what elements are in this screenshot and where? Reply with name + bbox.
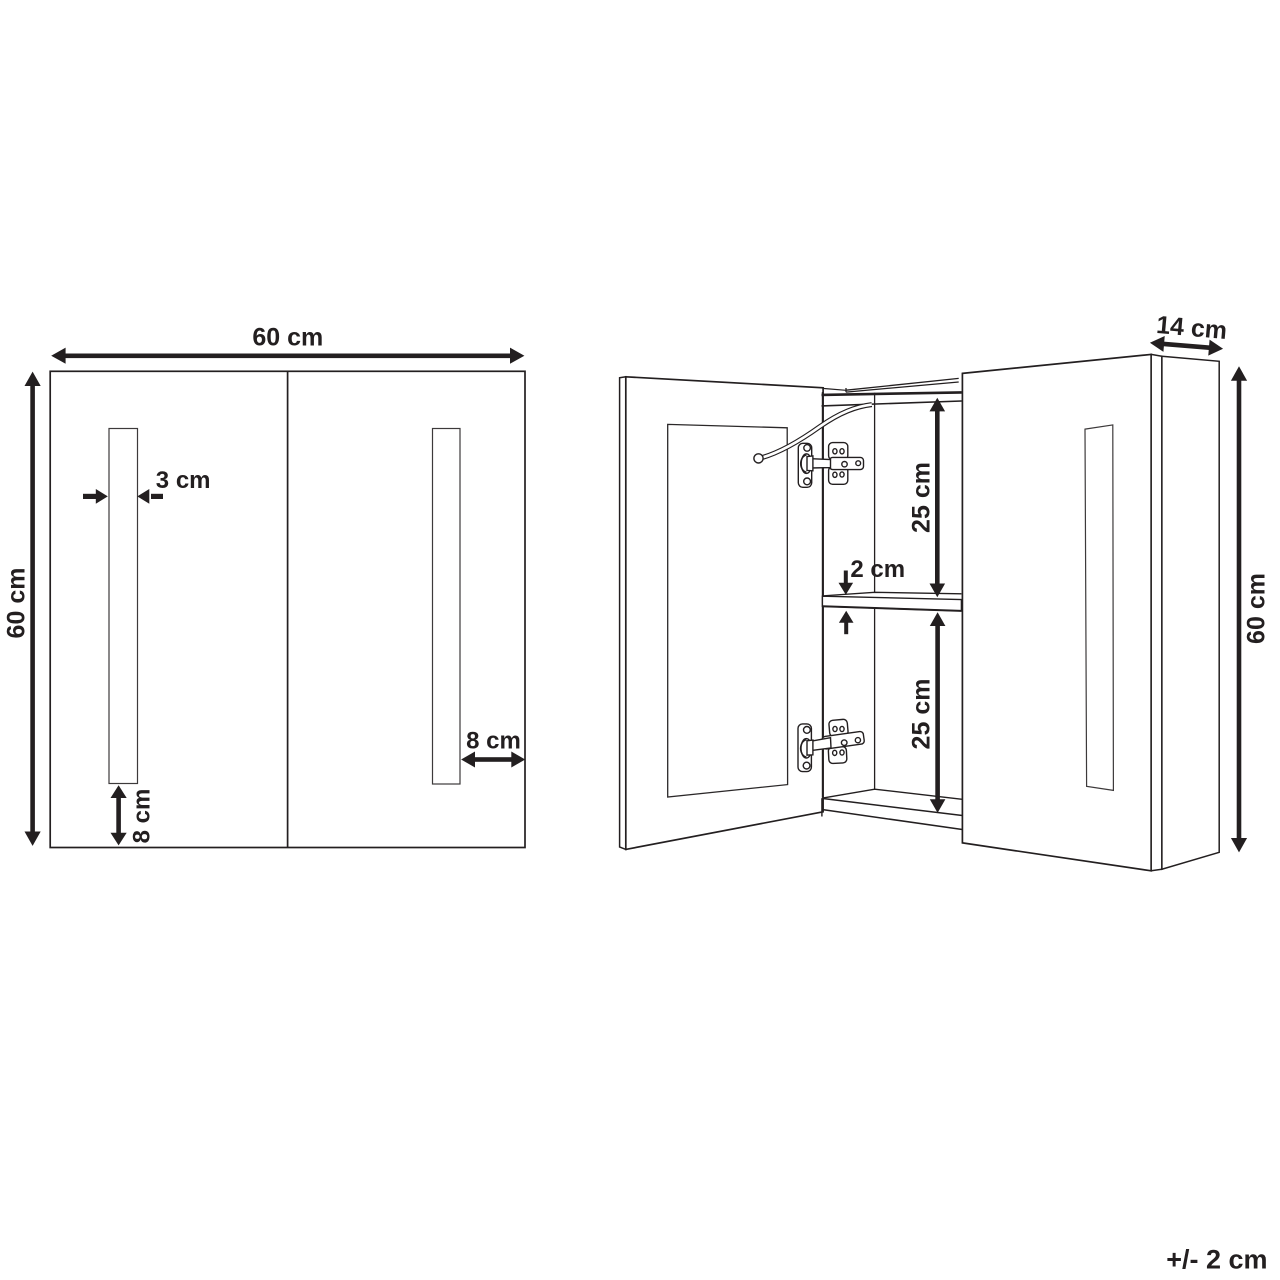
svg-text:8 cm: 8 cm [128, 789, 155, 844]
svg-text:60 cm: 60 cm [1243, 573, 1271, 644]
svg-text:3 cm: 3 cm [156, 467, 211, 494]
svg-text:+/- 2 cm: +/- 2 cm [1166, 1245, 1267, 1275]
svg-text:25 cm: 25 cm [908, 679, 936, 750]
svg-text:60 cm: 60 cm [252, 324, 323, 352]
svg-text:8 cm: 8 cm [466, 728, 521, 755]
svg-text:60 cm: 60 cm [2, 568, 30, 639]
svg-text:2 cm: 2 cm [850, 556, 905, 583]
svg-text:25 cm: 25 cm [908, 462, 936, 533]
